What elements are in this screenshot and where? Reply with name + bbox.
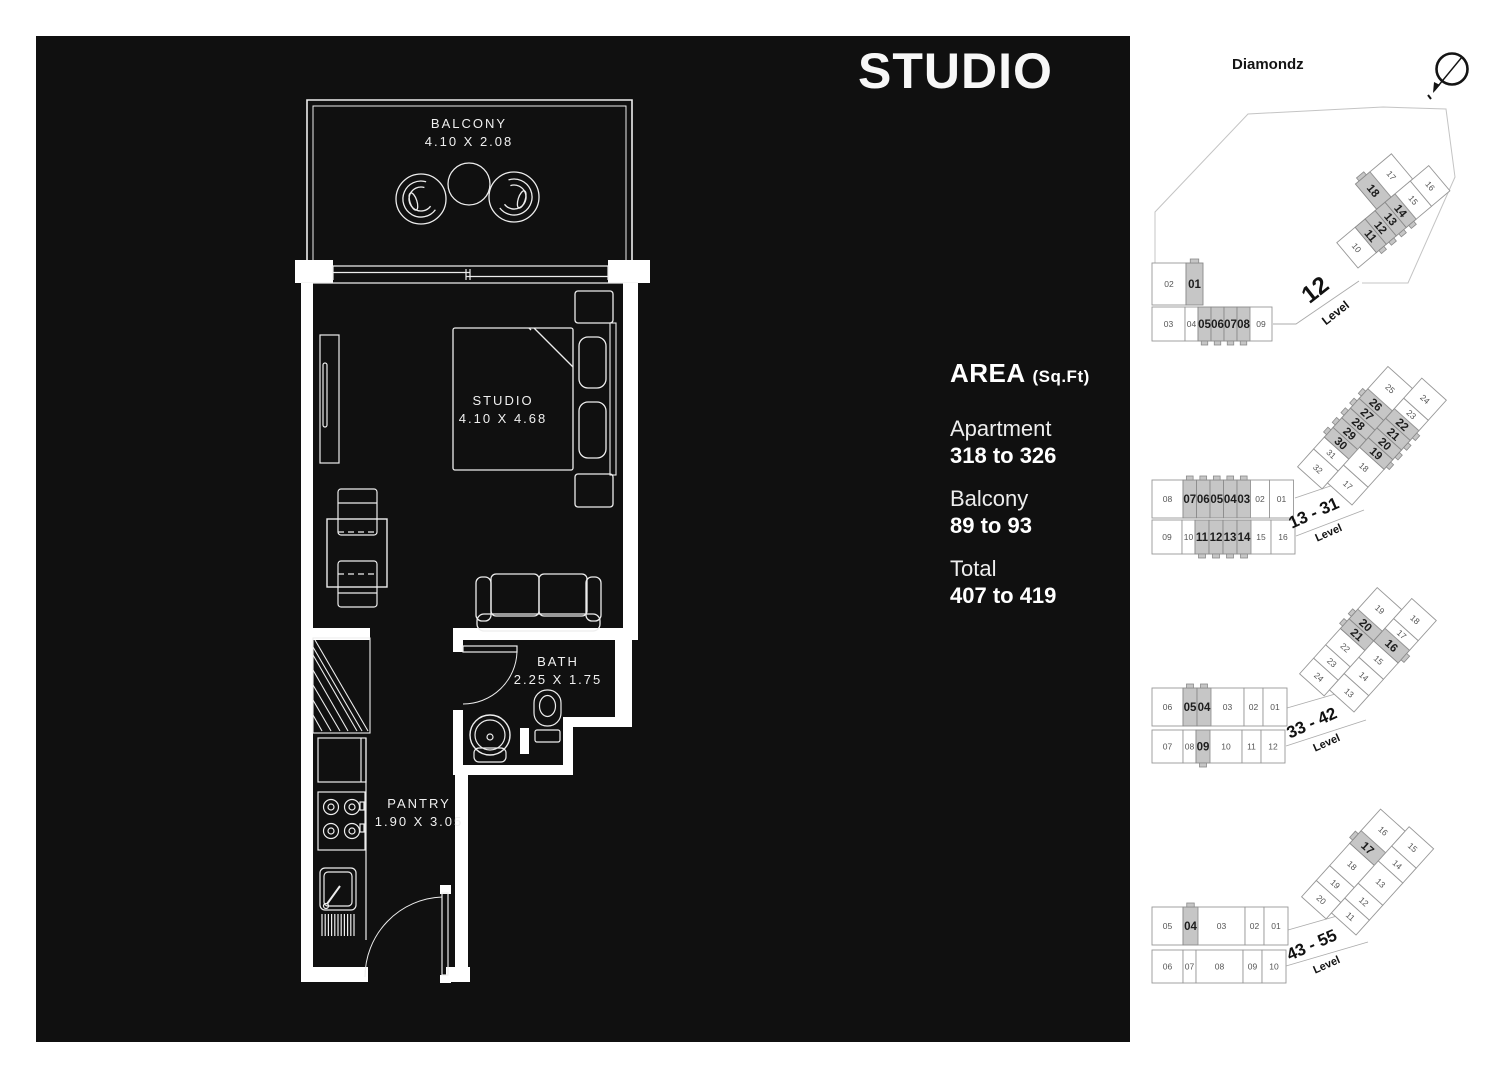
svg-text:06: 06 — [1211, 319, 1224, 331]
svg-text:13: 13 — [1224, 532, 1237, 544]
svg-text:04: 04 — [1198, 702, 1211, 714]
wardrobe — [320, 335, 339, 463]
svg-text:02: 02 — [1164, 279, 1174, 289]
svg-text:06: 06 — [1163, 962, 1173, 972]
svg-text:08: 08 — [1237, 319, 1250, 331]
bath-label: BATH — [537, 654, 579, 669]
area-row-balcony: Balcony 89 to 93 — [950, 485, 1090, 540]
level-range-label: 12 — [1297, 271, 1335, 309]
svg-text:10: 10 — [1184, 532, 1194, 542]
area-row-total: Total 407 to 419 — [950, 555, 1090, 610]
pantry-label: PANTRY — [387, 796, 451, 811]
svg-text:04: 04 — [1184, 921, 1197, 933]
floorplan-drawing: BALCONY 4.10 X 2.08 — [280, 80, 700, 1030]
balcony-label: BALCONY — [431, 116, 507, 131]
level-diagram-13-31: 0807060504030201091011121314151632313029… — [1150, 350, 1512, 580]
svg-text:07: 07 — [1185, 962, 1195, 972]
north-compass-icon — [1425, 46, 1477, 108]
balcony-table — [448, 163, 490, 205]
svg-text:06: 06 — [1197, 494, 1210, 506]
svg-text:12: 12 — [1268, 742, 1278, 752]
level-diagram-33-42: 0605040302010708091011122423222120191314… — [1150, 560, 1512, 790]
bath-door — [463, 646, 517, 704]
level-word-label: Level — [1311, 732, 1342, 754]
bath-sink — [470, 715, 510, 762]
area-heading: AREA (Sq.Ft) — [950, 358, 1090, 389]
svg-text:09: 09 — [1162, 532, 1172, 542]
svg-text:07: 07 — [1163, 742, 1173, 752]
studio-dim: 4.10 X 4.68 — [459, 411, 548, 426]
toilet — [534, 690, 561, 742]
svg-text:02: 02 — [1255, 494, 1265, 504]
svg-text:01: 01 — [1270, 702, 1280, 712]
sliding-window — [295, 260, 650, 283]
svg-text:03: 03 — [1223, 702, 1233, 712]
svg-text:02: 02 — [1249, 702, 1259, 712]
svg-text:10: 10 — [1269, 962, 1279, 972]
sofa — [476, 574, 601, 631]
level-word-label: Level — [1319, 298, 1352, 328]
svg-text:10: 10 — [1221, 742, 1231, 752]
svg-text:08: 08 — [1163, 494, 1173, 504]
balcony-chairs — [396, 172, 539, 224]
entry-door — [365, 893, 448, 977]
area-row-apartment: Apartment 318 to 326 — [950, 415, 1090, 470]
svg-text:05: 05 — [1210, 494, 1223, 506]
studio-label: STUDIO — [472, 393, 533, 408]
svg-text:14: 14 — [1238, 532, 1251, 544]
shaft-hatch — [313, 638, 370, 733]
svg-text:03: 03 — [1237, 494, 1250, 506]
pantry-dim: 1.90 X 3.05 — [375, 814, 464, 829]
svg-text:03: 03 — [1217, 921, 1227, 931]
svg-text:01: 01 — [1188, 279, 1201, 291]
svg-text:05: 05 — [1184, 702, 1197, 714]
key-plan-sidebar: Diamondz 0201030405060708091817101112131… — [1140, 0, 1512, 1080]
svg-text:01: 01 — [1277, 494, 1287, 504]
svg-text:02: 02 — [1250, 921, 1260, 931]
svg-text:07: 07 — [1224, 319, 1237, 331]
svg-text:09: 09 — [1256, 319, 1266, 329]
svg-text:11: 11 — [1196, 532, 1209, 544]
stove — [318, 792, 365, 850]
svg-text:09: 09 — [1197, 742, 1210, 754]
svg-text:08: 08 — [1185, 742, 1195, 752]
svg-text:12: 12 — [1210, 532, 1223, 544]
bath-dim: 2.25 X 1.75 — [514, 672, 603, 687]
svg-text:07: 07 — [1183, 494, 1196, 506]
svg-text:15: 15 — [1256, 532, 1266, 542]
page-title: STUDIO — [858, 42, 1053, 100]
floorplan-panel: STUDIO AREA (Sq.Ft) Apartment 318 to 326… — [36, 36, 1130, 1042]
area-unit: (Sq.Ft) — [1032, 367, 1089, 386]
svg-text:05: 05 — [1163, 921, 1173, 931]
svg-text:16: 16 — [1278, 532, 1288, 542]
svg-text:04: 04 — [1187, 319, 1197, 329]
level-diagram-12: 02010304050607080918171011121314151612Le… — [1150, 100, 1512, 360]
level-word-label: Level — [1313, 522, 1344, 544]
svg-text:05: 05 — [1198, 319, 1211, 331]
balcony-dim: 4.10 X 2.08 — [425, 134, 514, 149]
svg-text:06: 06 — [1163, 702, 1173, 712]
svg-text:08: 08 — [1215, 962, 1225, 972]
svg-text:09: 09 — [1248, 962, 1258, 972]
svg-text:11: 11 — [1247, 742, 1256, 752]
svg-text:03: 03 — [1164, 319, 1174, 329]
level-diagram-43-55: 0504030201060708091020191817161112131415… — [1150, 780, 1512, 1040]
kitchen-sink — [320, 868, 356, 936]
area-summary: AREA (Sq.Ft) Apartment 318 to 326 Balcon… — [950, 358, 1090, 625]
svg-text:04: 04 — [1224, 494, 1237, 506]
dining-table — [327, 489, 387, 607]
project-title: Diamondz — [1232, 56, 1304, 73]
svg-text:01: 01 — [1271, 921, 1281, 931]
